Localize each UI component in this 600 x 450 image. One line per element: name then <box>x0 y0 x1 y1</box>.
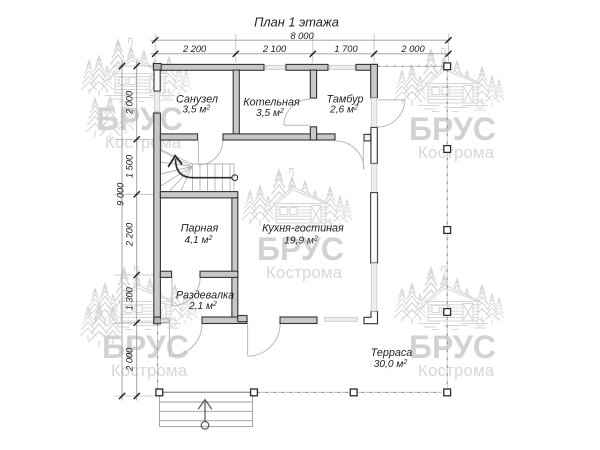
svg-text:Парная: Парная <box>181 223 219 235</box>
svg-text:3,5 м2: 3,5 м2 <box>256 108 284 119</box>
svg-text:2 100: 2 100 <box>262 44 287 54</box>
svg-text:Терраса: Терраса <box>371 347 413 359</box>
svg-text:Котельная: Котельная <box>243 97 300 109</box>
svg-text:2 200: 2 200 <box>124 222 134 247</box>
svg-text:План 1 этажа: План 1 этажа <box>254 14 339 29</box>
svg-text:Кухня-гостиная: Кухня-гостиная <box>262 222 344 234</box>
svg-text:4,1 м2: 4,1 м2 <box>185 235 213 246</box>
svg-text:1 700: 1 700 <box>334 44 358 54</box>
svg-text:Тамбур: Тамбур <box>326 93 363 105</box>
svg-text:19,9 м2: 19,9 м2 <box>284 236 318 247</box>
svg-text:1 500: 1 500 <box>124 154 134 178</box>
svg-text:2 000: 2 000 <box>124 347 134 372</box>
svg-text:2 200: 2 200 <box>182 44 207 54</box>
svg-text:30,0 м2: 30,0 м2 <box>374 359 408 370</box>
svg-text:2,6 м2: 2,6 м2 <box>329 105 358 116</box>
svg-text:8 000: 8 000 <box>290 31 314 41</box>
svg-text:1 300: 1 300 <box>124 286 134 310</box>
svg-text:2,1 м2: 2,1 м2 <box>188 301 217 312</box>
svg-text:2 000: 2 000 <box>400 44 425 54</box>
svg-text:3,5 м2: 3,5 м2 <box>182 105 210 116</box>
svg-text:9 000: 9 000 <box>115 182 125 206</box>
svg-text:2 000: 2 000 <box>124 90 134 115</box>
svg-text:Раздевалка: Раздевалка <box>176 290 234 302</box>
